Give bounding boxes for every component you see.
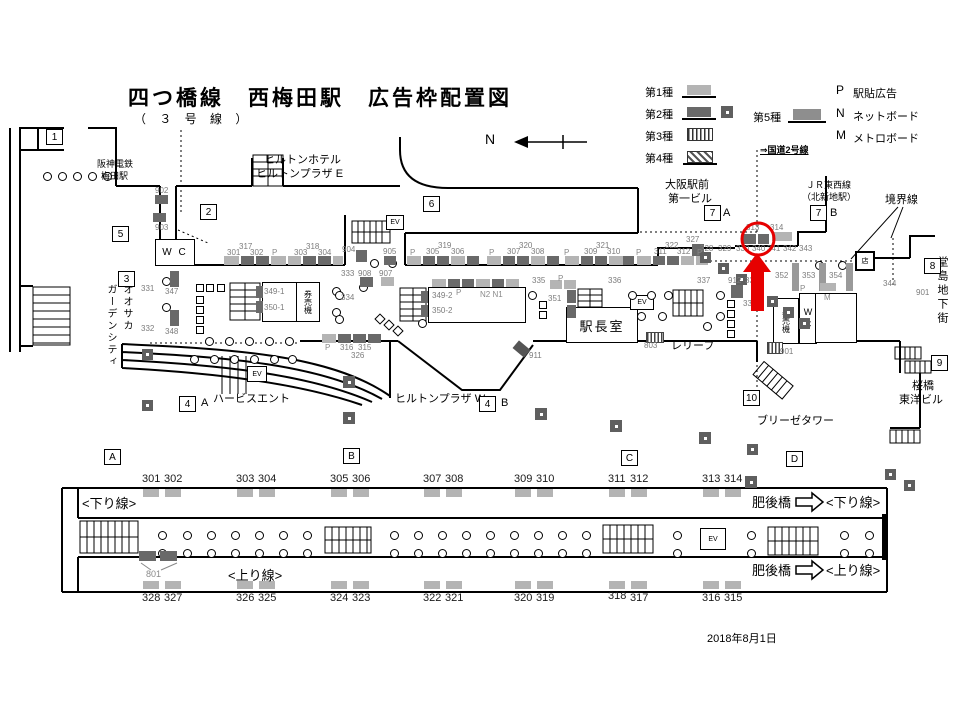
ad-frame-number: 339 [743, 300, 756, 308]
ad-frame-number: 905 [383, 248, 396, 256]
platform-frame-number: 307 [423, 474, 441, 485]
column-circle [58, 172, 67, 181]
column-circle [288, 355, 297, 364]
ad-marker [758, 234, 769, 244]
stairs-platform-b [325, 527, 371, 553]
column-circle [183, 531, 192, 540]
ad-marker [885, 469, 896, 480]
ad-frame-number: 313 [746, 224, 759, 232]
exit-number-box: 5 [112, 226, 129, 242]
ad-marker [143, 489, 159, 497]
ad-marker [165, 489, 181, 497]
p-code-label: P [800, 285, 805, 293]
ad-frame-number: 331 [141, 285, 154, 293]
column-circle [716, 312, 725, 321]
ad-frame-number: 319 [438, 242, 451, 250]
p-code-label: P [558, 275, 563, 283]
column-circle [285, 337, 294, 346]
platform-frame-number: 312 [630, 474, 648, 485]
ad-marker [139, 551, 156, 561]
column-circle [303, 531, 312, 540]
column-circle [414, 549, 423, 558]
column-circle [528, 291, 537, 300]
column-circle [245, 337, 254, 346]
ad-marker [170, 271, 179, 287]
ad-marker [752, 285, 763, 296]
compass [514, 135, 587, 149]
column-circle [205, 337, 214, 346]
ad-marker [142, 349, 153, 360]
platform-frame-number: 321 [445, 593, 463, 604]
elevator-box: EV [247, 366, 267, 382]
legend-type4-label: 第4種 [645, 150, 673, 166]
ad-marker [703, 489, 719, 497]
column-circle [279, 549, 288, 558]
compass-n-label: N [485, 132, 495, 146]
exit-number-box: 8 [924, 258, 941, 274]
ad-marker [820, 283, 836, 291]
place-label: ブリーゼタワー [757, 416, 834, 427]
ad-marker [725, 581, 741, 589]
page-subtitle: （ ３ 号 線 ） [134, 110, 252, 127]
wall-hilton [345, 137, 638, 265]
ad-frame-number: 349-1 [264, 288, 284, 296]
column-circle [158, 531, 167, 540]
ad-marker [360, 277, 373, 287]
exit-number-box: 7 [810, 205, 827, 221]
legend-code-m: M [836, 128, 846, 142]
ad-marker [537, 489, 553, 497]
platform-frame-number: 318 [608, 591, 626, 602]
column-circle [370, 259, 379, 268]
ad-marker [506, 279, 519, 287]
legend-type1-swatch [687, 85, 711, 95]
revision-date: 2018年8月1日 [707, 630, 777, 646]
room-box [815, 293, 857, 343]
platform-frame-number: 320 [514, 593, 532, 604]
ad-marker [609, 256, 623, 265]
platform-frame-number: 328 [142, 593, 160, 604]
line-direction-label: <上り線> [228, 569, 282, 582]
ad-marker [256, 256, 269, 265]
ad-frame-number: 901 [780, 348, 793, 356]
column-circle [716, 291, 725, 300]
column-circle [190, 355, 199, 364]
ad-frame-number: 353 [802, 272, 815, 280]
ad-frame-number: 314 [770, 224, 783, 232]
ad-marker [537, 581, 553, 589]
ad-frame-number: 350-2 [432, 307, 452, 315]
column-circle [43, 172, 52, 181]
column-circle [255, 531, 264, 540]
ad-marker [517, 256, 529, 265]
ad-frame-number: 328 [700, 245, 713, 253]
column-circle [210, 355, 219, 364]
ad-marker [547, 256, 559, 265]
p-code-label: N2 N1 [480, 291, 503, 299]
gate-square [206, 284, 214, 292]
gate-square [196, 296, 204, 304]
ad-frame-number: 908 [358, 270, 371, 278]
room-box-W C: W C [155, 239, 195, 266]
exit-number-box: 4 [479, 396, 496, 412]
ad-marker [564, 280, 576, 289]
place-label: B [830, 208, 837, 219]
platform-frame-number: 301 [142, 474, 160, 485]
column-circle [534, 549, 543, 558]
line-direction-label: <下り線> [82, 497, 136, 510]
column-circle [279, 531, 288, 540]
place-label: A [723, 208, 730, 219]
column-circle [390, 531, 399, 540]
ad-marker [256, 301, 263, 313]
ad-marker [503, 256, 515, 265]
column-circle [438, 549, 447, 558]
column-circle [462, 549, 471, 558]
ad-marker [567, 290, 576, 303]
p-code-label: M [824, 294, 831, 302]
legend-type3-swatch [687, 128, 713, 141]
ad-frame-number: 340 [752, 245, 765, 253]
room-box-店: 店 [855, 251, 875, 271]
ad-marker [476, 279, 490, 287]
gate-square [727, 300, 735, 308]
ad-marker [681, 256, 694, 265]
ad-marker [448, 279, 460, 287]
ad-marker [718, 263, 729, 274]
ad-marker [322, 334, 336, 343]
ad-marker [451, 256, 465, 265]
column-circle [628, 291, 637, 300]
legend-type4-swatch [687, 151, 713, 163]
column-circle [207, 549, 216, 558]
gate-square [539, 311, 547, 319]
exit-number-box: D [786, 451, 803, 467]
platform-frame-number: 316 [702, 593, 720, 604]
ad-frame-number: 901 [916, 289, 929, 297]
ad-marker [407, 256, 421, 265]
ad-marker [343, 412, 355, 424]
line-direction-label: <上り線> [826, 564, 880, 577]
platform-frame-number: 303 [236, 474, 254, 485]
place-label: 大阪駅前 [665, 180, 709, 191]
ad-frame-number: 329 [718, 245, 731, 253]
ad-frame-number: 312 [677, 248, 690, 256]
column-circle [73, 172, 82, 181]
ad-frame-number: 334 [341, 294, 354, 302]
column-circle [255, 549, 264, 558]
place-label: ハービスエント [213, 394, 290, 405]
ad-marker [421, 291, 428, 303]
elevator-box: EV [386, 215, 404, 230]
ad-marker [142, 400, 153, 411]
room-box-券売機: 券売機 [296, 282, 320, 322]
line-direction-label: <下り線> [826, 496, 880, 509]
p-code-label: P [636, 249, 641, 257]
page-title: 四つ橋線 西梅田駅 広告枠配置図 [128, 82, 512, 112]
gate-square [196, 326, 204, 334]
gate-square [727, 310, 735, 318]
ad-marker [799, 318, 810, 329]
ad-marker [338, 334, 351, 343]
stairs-platform-d [768, 527, 818, 555]
p-code-label: P [325, 344, 330, 352]
ad-marker [609, 489, 625, 497]
place-label: ＪＲ東西線 [806, 181, 851, 190]
place-label: ヒルトンプラザ W [395, 394, 485, 405]
ad-frame-number: 348 [165, 328, 178, 336]
place-label: 桜橋 [912, 381, 934, 392]
place-label: 東洋ビル [899, 395, 943, 406]
legend-type5-label: 第5種 [753, 109, 781, 125]
compass-arrowhead [514, 136, 528, 148]
column-circle [418, 319, 427, 328]
platform-frame-number: 322 [423, 593, 441, 604]
gate-square [727, 320, 735, 328]
legend-code-p-label: 駅貼広告 [853, 85, 897, 101]
ad-marker [237, 489, 253, 497]
platform-frame-number: 315 [724, 593, 742, 604]
legend-type2-label: 第2種 [645, 106, 673, 122]
p-code-label: P [410, 249, 415, 257]
ad-marker [384, 256, 396, 265]
ad-frame-number: 330 [736, 245, 749, 253]
ad-frame-number: 308 [531, 248, 544, 256]
ad-frame-number: 907 [379, 270, 392, 278]
column-circle [658, 312, 667, 321]
platform-frame-number: 311 [608, 474, 626, 485]
legend-type5-swatch [793, 109, 821, 120]
platform-frame-number: 319 [536, 593, 554, 604]
column-circle [582, 531, 591, 540]
column-circle [414, 531, 423, 540]
ad-marker [224, 256, 239, 265]
ad-marker [792, 263, 799, 291]
column-circle [747, 531, 756, 540]
ad-frame-number: 304 [318, 249, 331, 257]
legend-code-p: P [836, 83, 844, 97]
column-circle [558, 531, 567, 540]
platform-frame-number: 327 [164, 593, 182, 604]
ad-frame-number: 338 [745, 277, 758, 285]
exit-number-box: C [621, 450, 638, 466]
ad-marker [581, 256, 593, 265]
ad-marker [432, 279, 446, 287]
platform-frame-number: 325 [258, 593, 276, 604]
exit-number-box: 3 [118, 271, 135, 287]
ad-marker [653, 256, 665, 265]
ad-frame-number: 350-1 [264, 304, 284, 312]
ad-frame-number: 351 [548, 295, 561, 303]
stairs-hanshin [33, 287, 70, 345]
platform-frame-number: 306 [352, 474, 370, 485]
ad-marker [623, 256, 634, 265]
ad-marker [492, 279, 504, 287]
platform-frame-number: 313 [702, 474, 720, 485]
ad-marker [703, 581, 719, 589]
exit-number-box: A [104, 449, 121, 465]
ad-marker [160, 551, 177, 561]
room-box-駅長室: 駅長室 [566, 307, 638, 343]
station-ad-map: 四つ橋線 西梅田駅 広告枠配置図 （ ３ 号 線 ） 第1種 第2種 第3種 第… [0, 0, 960, 720]
ad-marker [421, 305, 428, 317]
ad-frame-number: 904 [342, 246, 355, 254]
place-label-vertical: オオサカ [121, 284, 131, 332]
ad-marker [609, 581, 625, 589]
place-label: A [201, 398, 208, 409]
column-circle [486, 549, 495, 558]
ad-frame-number: 903 [155, 224, 168, 232]
legend-type2-square-swatch [721, 106, 733, 118]
legend-type3-label: 第3種 [645, 128, 673, 144]
ad-frame-number: 803 [644, 342, 657, 350]
place-label: ヒルトンホテル [264, 155, 341, 166]
ad-marker [637, 256, 651, 265]
gate-square [217, 284, 225, 292]
ad-frame-number: 801 [146, 570, 161, 579]
ad-marker [424, 581, 440, 589]
line-direction-label: 肥後橋 [752, 564, 791, 577]
ad-marker [437, 256, 449, 265]
ad-marker [446, 489, 462, 497]
ad-frame-number: 354 [829, 272, 842, 280]
ad-marker [423, 256, 435, 265]
platform-frame-number: 324 [330, 593, 348, 604]
ad-marker [170, 310, 179, 326]
gate-square [727, 330, 735, 338]
place-label: ヒルトンプラザ E [256, 169, 343, 180]
ad-marker [767, 296, 778, 307]
ad-frame-number: 344 [883, 280, 896, 288]
column-circle [840, 531, 849, 540]
ad-marker [143, 581, 159, 589]
ad-marker [241, 256, 254, 265]
ad-marker [356, 250, 367, 262]
column-circle [703, 322, 712, 331]
ad-frame-number: 310 [607, 248, 620, 256]
column-circle [303, 549, 312, 558]
p-code-label: P [272, 249, 277, 257]
elevator-box: EV [700, 528, 726, 550]
right-arrow-icon [796, 561, 823, 579]
ad-marker [699, 432, 711, 444]
column-circle [225, 337, 234, 346]
line-direction-label: 肥後橋 [752, 496, 791, 509]
ad-marker [772, 232, 792, 241]
platform-frame-number: 323 [352, 593, 370, 604]
ad-marker [256, 286, 263, 298]
place-label: 第一ビル [668, 194, 712, 205]
column-circle [486, 531, 495, 540]
stairs-east [673, 290, 703, 316]
ad-frame-number: 347 [165, 288, 178, 296]
platform-frame-number: 314 [724, 474, 742, 485]
ad-frame-number: 352 [775, 272, 788, 280]
exit-number-box: 9 [931, 355, 948, 371]
ad-frame-number: 912 [728, 277, 741, 285]
ad-marker [155, 195, 168, 204]
column-circle [231, 549, 240, 558]
legend-type2-swatch [687, 107, 711, 117]
column-circle [230, 355, 239, 364]
ad-marker [288, 256, 301, 265]
column-circle [582, 549, 591, 558]
ad-marker [165, 581, 181, 589]
ad-marker [353, 334, 366, 343]
ad-marker [565, 256, 579, 265]
ad-marker [467, 256, 479, 265]
place-label: B [501, 398, 508, 409]
right-arrow-icon [796, 493, 823, 511]
column-circle [510, 549, 519, 558]
ad-frame-number: 326 [351, 352, 364, 360]
ad-marker [353, 489, 369, 497]
column-circle [207, 531, 216, 540]
platform-frame-number: 302 [164, 474, 182, 485]
ad-marker [595, 256, 607, 265]
ad-frame-number: 333 [341, 270, 354, 278]
ad-frame-number: 337 [697, 277, 710, 285]
column-circle [183, 549, 192, 558]
ad-frame-number: 327 [686, 236, 699, 244]
exit-number-box: 7 [704, 205, 721, 221]
stairs-platform-a [80, 521, 138, 553]
gate-square [196, 284, 204, 292]
p-code-label: P [489, 249, 494, 257]
ad-marker [904, 480, 915, 491]
column-circle [664, 291, 673, 300]
ad-marker [610, 420, 622, 432]
column-circle [637, 312, 646, 321]
ad-marker [462, 279, 474, 287]
stairs-sakurabashi [890, 430, 920, 443]
ad-marker [745, 476, 757, 488]
place-label: （北新地駅） [802, 193, 856, 202]
ad-marker [531, 256, 545, 265]
ad-marker [515, 581, 531, 589]
ad-marker [725, 489, 741, 497]
exit-number-box: 10 [743, 390, 760, 406]
ad-frame-number: 332 [141, 325, 154, 333]
column-circle [462, 531, 471, 540]
place-label: 梅田駅 [101, 172, 128, 181]
ad-marker [318, 256, 331, 265]
ad-marker [271, 256, 286, 265]
ad-marker [333, 256, 343, 265]
column-circle [88, 172, 97, 181]
ad-marker [368, 334, 381, 343]
column-circle [231, 531, 240, 540]
ad-marker [153, 213, 166, 222]
stairs-platform-c [603, 525, 653, 553]
column-circle [270, 355, 279, 364]
platform-frame-number: 304 [258, 474, 276, 485]
ad-frame-number: 342 [783, 245, 796, 253]
ad-marker [743, 234, 756, 244]
column-circle [265, 337, 274, 346]
ad-marker [535, 408, 547, 420]
platform-frame-number: 317 [630, 593, 648, 604]
column-circle [335, 315, 344, 324]
ad-marker [567, 305, 576, 318]
legend-code-m-label: メトロボード [853, 130, 919, 146]
ad-marker [331, 581, 347, 589]
gate-square [539, 301, 547, 309]
gate-square [196, 306, 204, 314]
platform-frame-number: 310 [536, 474, 554, 485]
ad-marker [783, 307, 794, 318]
place-label: 阪神電鉄 [97, 160, 133, 169]
